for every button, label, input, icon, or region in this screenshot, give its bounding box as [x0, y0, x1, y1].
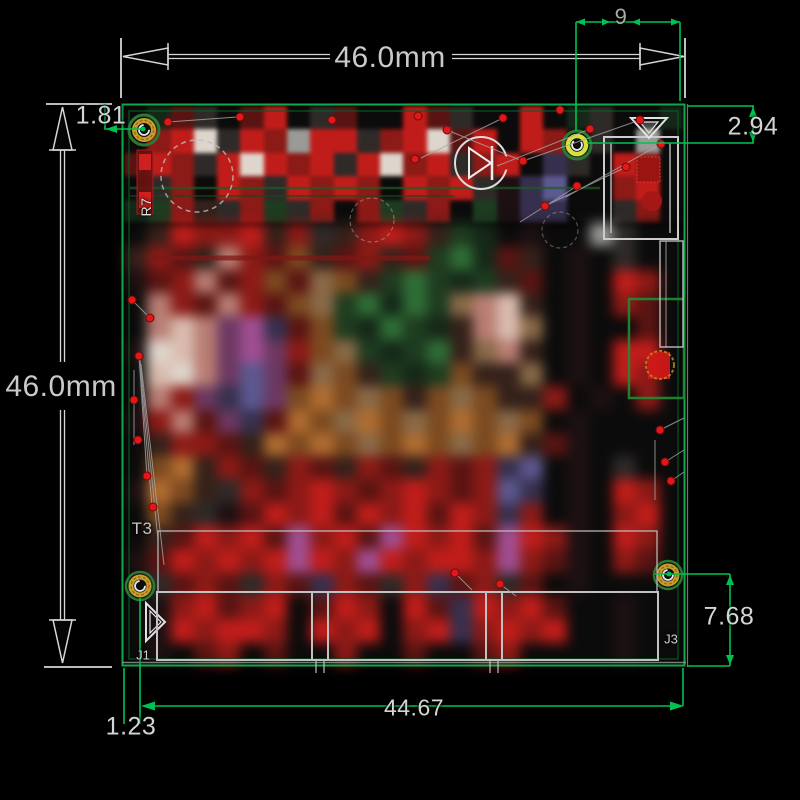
refdes-j3: J3 — [664, 632, 678, 647]
dim-label-left-height: 46.0mm — [5, 370, 116, 404]
dim-label-edge-span-top-right: 9 — [615, 4, 628, 30]
refdes-t3: T3 — [132, 519, 153, 539]
pcb-photo-mosaic-top — [124, 106, 683, 223]
refdes-r7: R7 — [138, 198, 154, 217]
pcb-photo-mosaic-bottom — [124, 223, 683, 666]
dim-label-hole-offset-bottom-right: 7.68 — [704, 603, 755, 632]
dim-arrow-left-icon — [123, 48, 168, 65]
dim-arrow-right-icon — [640, 48, 684, 65]
dim-label-hole-span-bottom: 44.67 — [384, 695, 444, 722]
dim-label-top-width: 46.0mm — [334, 41, 445, 75]
dim-label-hole-offset-top-left: 1.81 — [76, 102, 127, 131]
dim-arrow-down-icon — [53, 620, 72, 663]
dim-arrow-up-icon — [53, 107, 72, 150]
refdes-j1: J1 — [136, 648, 150, 663]
dim-label-hole-offset-bottom-left: 1.23 — [106, 713, 157, 742]
dim-label-hole-offset-top-right: 2.94 — [728, 113, 779, 142]
pcb-dimension-drawing: 46.0mm 46.0mm 1.81 9 2.94 7.68 44.67 1.2… — [0, 0, 800, 800]
